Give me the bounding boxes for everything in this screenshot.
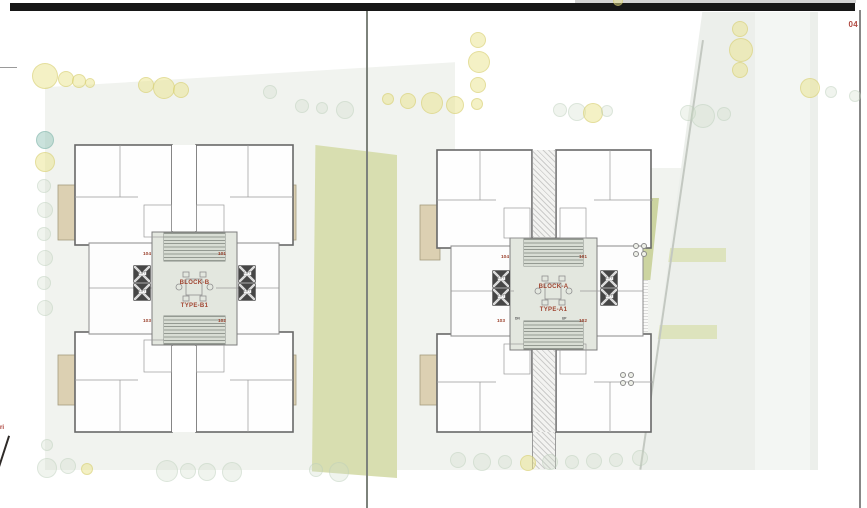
tree-icon xyxy=(58,71,74,87)
wing-gap xyxy=(172,145,196,231)
road-strip xyxy=(755,12,810,470)
stair-down-label: DN xyxy=(515,317,520,320)
block-type: TYPE-B1 xyxy=(152,303,237,309)
lift-label: LIFT xyxy=(244,272,251,275)
block-type: TYPE-A1 xyxy=(510,307,597,313)
staircase xyxy=(524,239,583,266)
lift-label: LIFT xyxy=(244,290,251,293)
sheet-divider-line xyxy=(366,11,368,508)
edge-cutoff-text: ri xyxy=(0,425,4,431)
unit-number: 104 xyxy=(498,255,512,260)
staircase xyxy=(164,233,225,261)
lift-label: LIFT xyxy=(139,290,146,293)
lift-label: LIFT xyxy=(606,277,613,280)
block-name: BLOCK-B xyxy=(152,280,237,286)
block-name: BLOCK-A xyxy=(510,284,597,290)
site-notch xyxy=(455,12,700,168)
top-black-bar xyxy=(10,3,855,11)
site-plan-sheet: LIFT LIFT LIFT LIFT 104 101 103 102 BLOC… xyxy=(0,0,867,508)
central-walkway xyxy=(532,350,556,432)
lift-label: LIFT xyxy=(139,272,146,275)
unit-number: 104 xyxy=(140,252,154,257)
tree-icon xyxy=(32,63,58,89)
walkway-hatch xyxy=(532,431,556,469)
stair-up-label: UP xyxy=(562,317,567,320)
unit-number: 103 xyxy=(494,319,508,324)
lift-label: LIFT xyxy=(498,295,505,298)
wing-gap xyxy=(172,346,196,432)
unit-number: 101 xyxy=(576,255,590,260)
lift-label: LIFT xyxy=(606,295,613,298)
unit-number: 102 xyxy=(215,319,229,324)
unit-number: 101 xyxy=(215,252,229,257)
lift-label: LIFT xyxy=(498,277,505,280)
tree-icon xyxy=(825,86,837,98)
central-lawn xyxy=(312,145,397,478)
staircase xyxy=(524,321,583,349)
edge-logo-stroke xyxy=(0,435,10,467)
unit-number: 103 xyxy=(140,319,154,324)
central-walkway xyxy=(532,150,556,237)
page-number: 04 xyxy=(836,20,858,29)
block-a-floor-plan: LIFT LIFT LIFT LIFT 104 101 103 102 BLOC… xyxy=(420,150,660,432)
page-edge-shadow xyxy=(859,10,861,508)
dimension-tick xyxy=(0,67,17,68)
block-b-floor-plan: LIFT LIFT LIFT LIFT 104 101 103 102 BLOC… xyxy=(58,145,296,432)
unit-number: 102 xyxy=(576,319,590,324)
